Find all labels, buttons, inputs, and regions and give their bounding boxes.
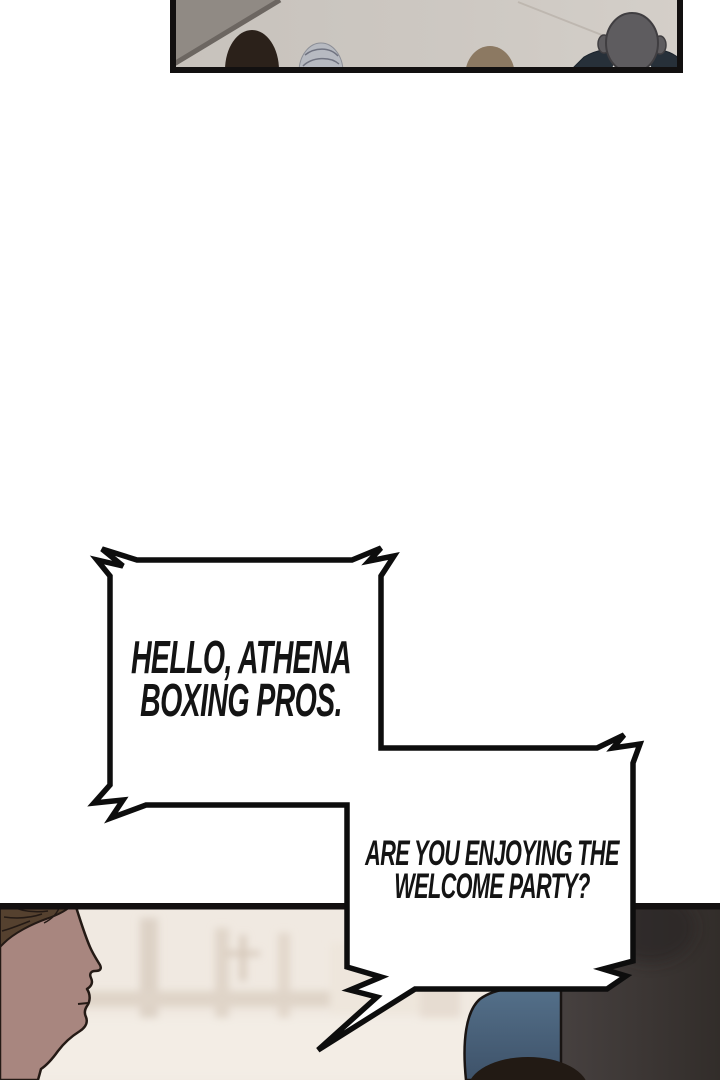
bubble1-line2: BOXING PROS. — [140, 677, 342, 723]
speech-bubble-outline — [94, 548, 640, 1050]
bubble2-line2: WELCOME PARTY? — [394, 869, 589, 904]
speech-bubble-layer — [0, 0, 720, 1080]
comic-page: HELLO, ATHENA BOXING PROS. ARE YOU ENJOY… — [0, 0, 720, 1080]
bubble2-line1: ARE YOU ENJOYING THE — [365, 836, 619, 871]
